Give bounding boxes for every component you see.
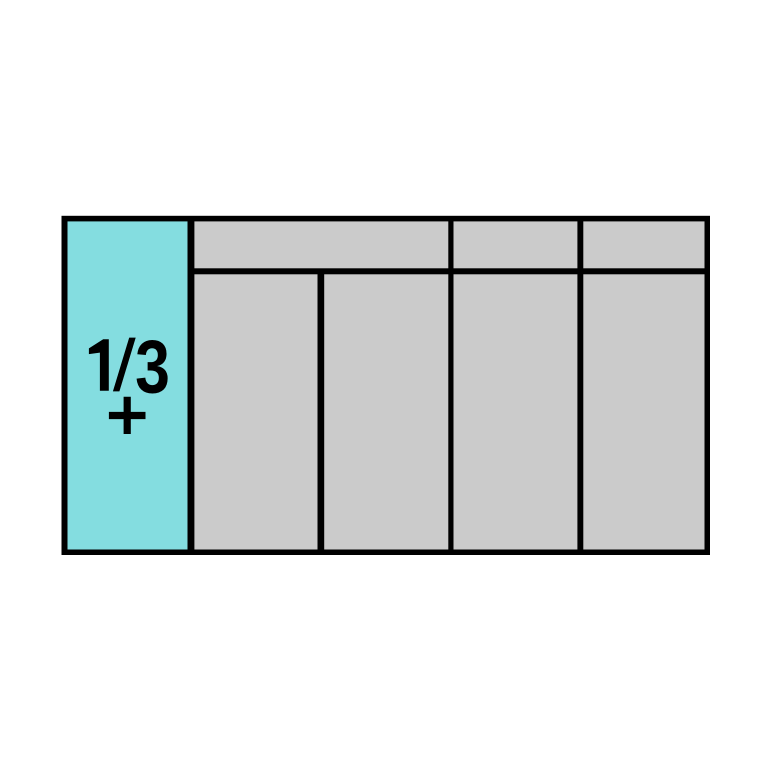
svg-text:3: 3 xyxy=(135,324,170,409)
